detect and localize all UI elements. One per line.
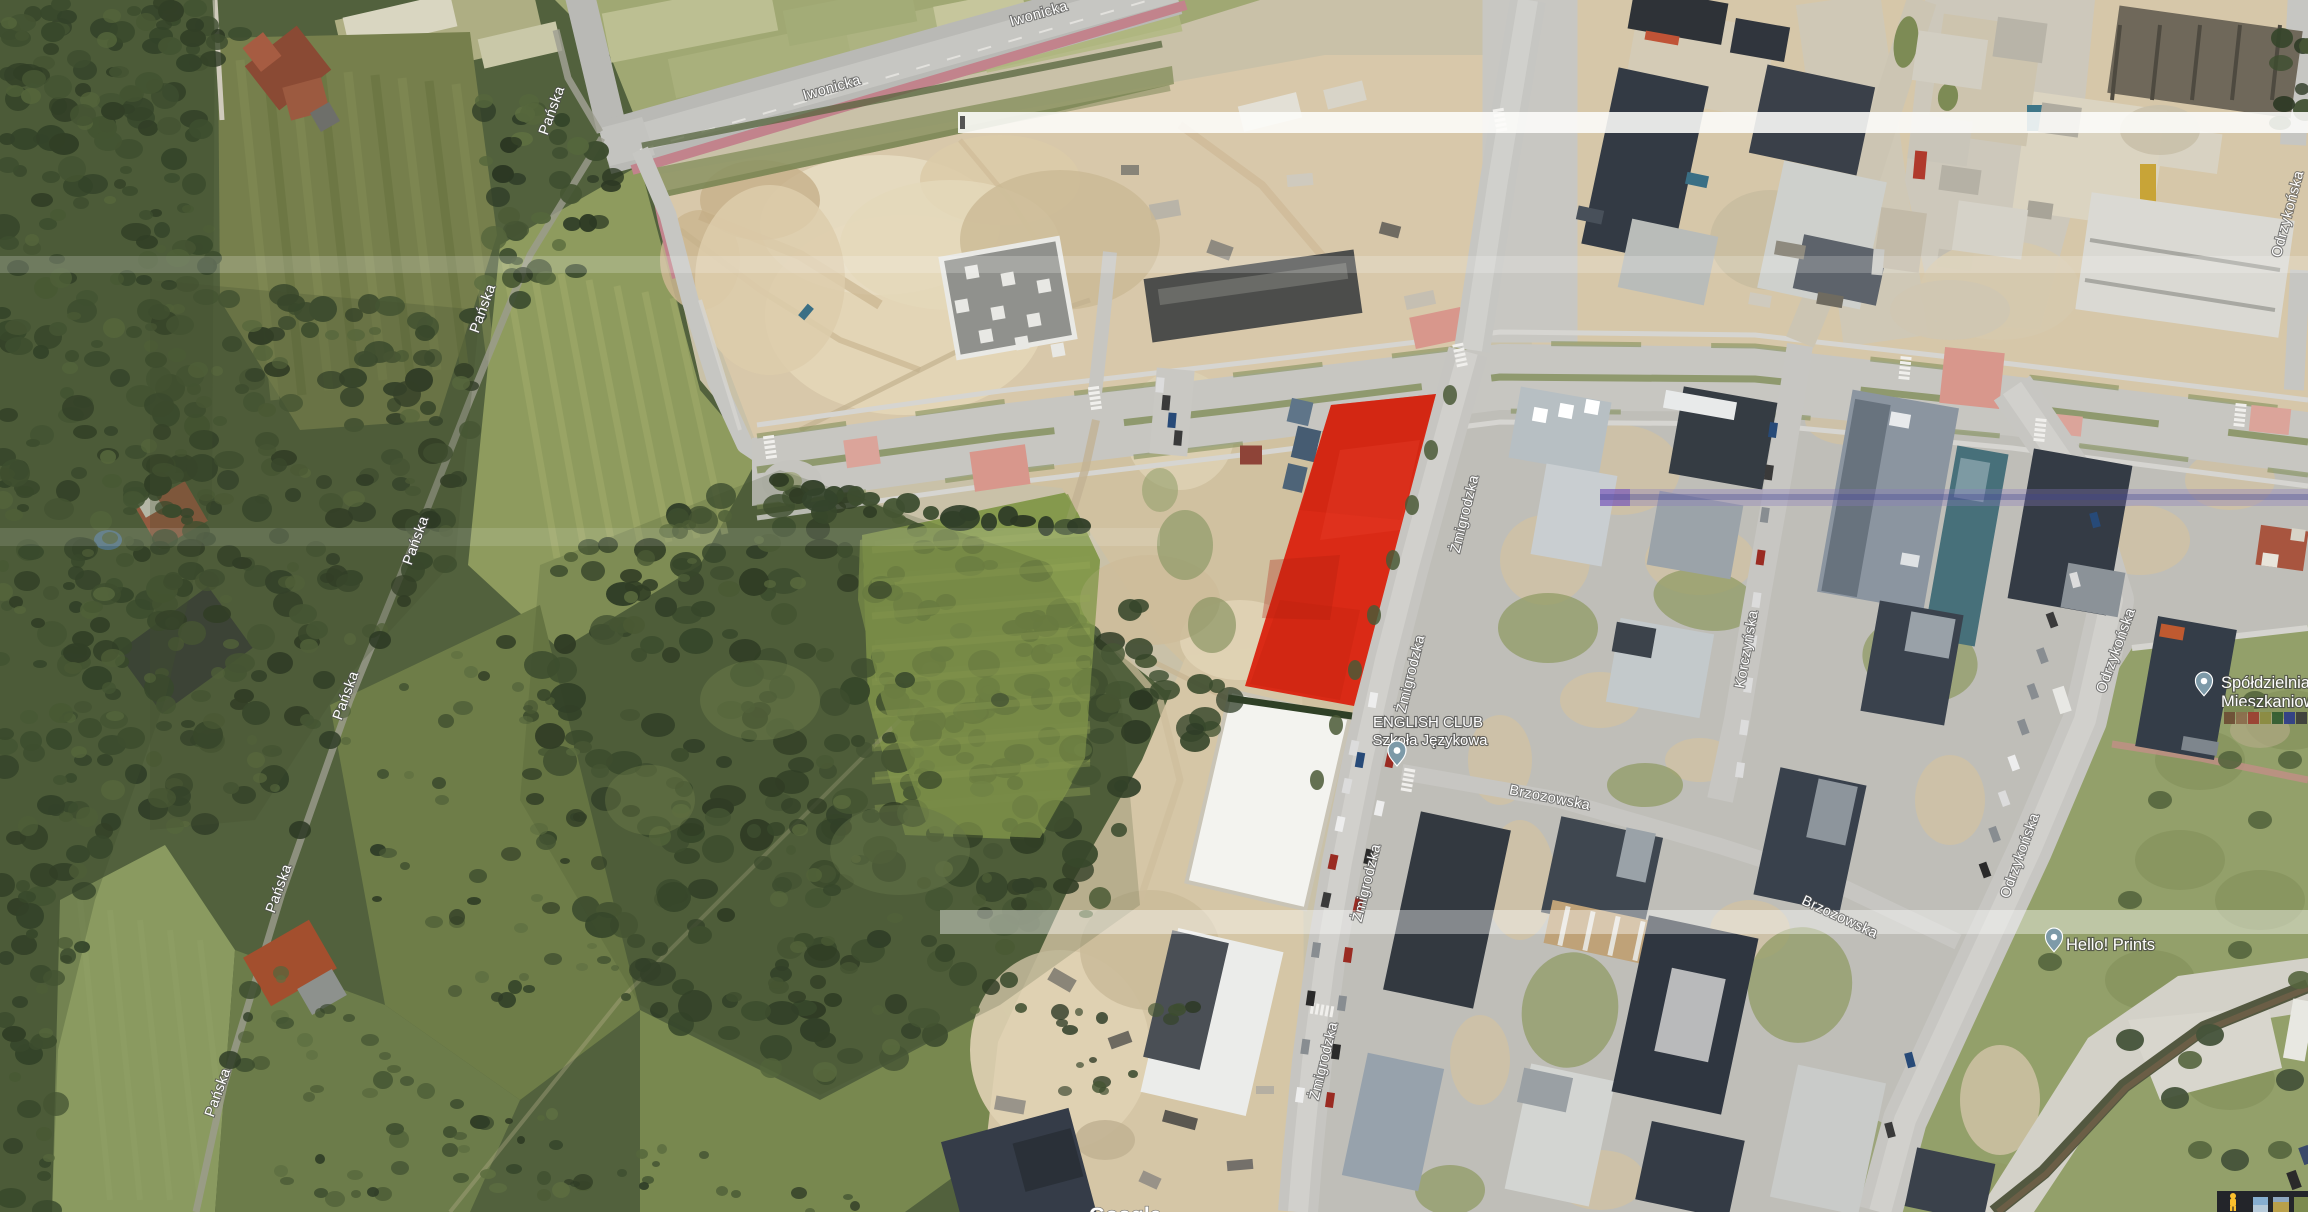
svg-text:Hello! Prints: Hello! Prints (2066, 936, 2155, 954)
svg-text:Spółdzielnia: Spółdzielnia (2221, 674, 2308, 692)
svg-text:ENGLISH CLUB: ENGLISH CLUB (1373, 714, 1483, 731)
svg-text:Google: Google (1089, 1204, 1161, 1212)
